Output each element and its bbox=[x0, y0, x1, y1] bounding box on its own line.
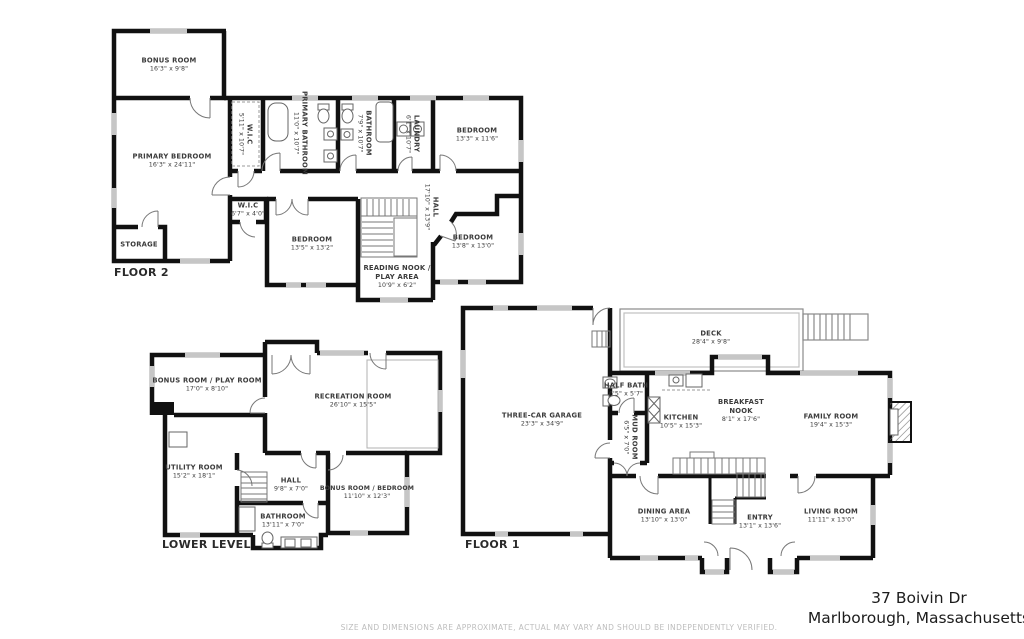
room-label-wic: W.I.C5'11" x 10'7" bbox=[237, 113, 254, 155]
utility-equipment-icon bbox=[169, 432, 187, 447]
room-label-garage: THREE-CAR GARAGE23'3" x 34'9" bbox=[502, 412, 582, 429]
sink-icon bbox=[301, 539, 311, 547]
bathtub-icon bbox=[268, 103, 288, 141]
room-label-bonus-play-room: BONUS ROOM / PLAY ROOM17'0" x 8'10" bbox=[152, 377, 261, 394]
disclaimer-text: SIZE AND DIMENSIONS ARE APPROXIMATE, ACT… bbox=[341, 623, 778, 632]
address-line2: Marlborough, Massachusetts bbox=[808, 608, 1024, 628]
room-label-bedroom-3: BEDROOM13'8" x 13'0" bbox=[452, 234, 494, 251]
room-label-laundry: LAUNDRY6'1" x 10'7" bbox=[404, 115, 421, 153]
address-line1: 37 Boivin Dr bbox=[808, 588, 1024, 608]
room-label-entry: ENTRY13'1" x 13'6" bbox=[739, 514, 781, 531]
lower-stairs-icon bbox=[241, 472, 267, 502]
room-label-primary-bathroom: PRIMARY BATHROOM11'0" x 10'7" bbox=[292, 91, 309, 175]
room-label-bedroom-2: BEDROOM13'5" x 13'2" bbox=[291, 236, 333, 253]
room-label-recreation-room: RECREATION ROOM26'10" x 15'5" bbox=[314, 393, 391, 410]
room-label-lower-bathroom: BATHROOM13'11" x 7'0" bbox=[260, 513, 305, 530]
room-label-breakfast-nook: BREAKFAST NOOK8'1" x 17'6" bbox=[710, 398, 772, 424]
fireplace-icon bbox=[889, 402, 911, 442]
room-label-living-room: LIVING ROOM11'11" x 13'0" bbox=[804, 508, 858, 525]
room-label-hall: HALL17'10" x 13'9" bbox=[423, 184, 440, 230]
floor2-title: FLOOR 2 bbox=[114, 266, 169, 279]
room-label-bonus-room: BONUS ROOM16'3" x 9'8" bbox=[142, 57, 197, 74]
deck-outline bbox=[620, 309, 868, 371]
shower-icon bbox=[239, 507, 255, 531]
room-label-wic-2: W.I.C6'7" x 4'0" bbox=[231, 202, 265, 219]
property-address: 37 Boivin Dr Marlborough, Massachusetts bbox=[808, 588, 1024, 628]
floor1-title: FLOOR 1 bbox=[465, 538, 520, 551]
room-label-primary-bedroom: PRIMARY BEDROOM16'3" x 24'11" bbox=[133, 153, 212, 170]
bathtub-icon bbox=[376, 102, 393, 142]
room-label-utility-room: UTILITY ROOM15'2" x 18'1" bbox=[165, 464, 222, 481]
floor2-stairs-icon bbox=[361, 198, 417, 257]
room-label-half-bath: HALF BATH6'5" x 5'7" bbox=[604, 382, 648, 399]
range-icon bbox=[648, 397, 660, 423]
room-label-bedroom-1: BEDROOM13'3" x 11'6" bbox=[456, 127, 498, 144]
room-label-bathroom: BATHROOM7'9" x 10'7" bbox=[356, 110, 373, 155]
floor-plan-page: BONUS ROOM16'3" x 9'8" PRIMARY BEDROOM16… bbox=[0, 0, 1024, 639]
room-label-lower-hall: HALL9'8" x 7'0" bbox=[274, 477, 308, 494]
fridge-icon bbox=[686, 374, 702, 387]
room-label-deck: DECK28'4" x 9'8" bbox=[692, 330, 730, 347]
room-label-kitchen: KITCHEN10'5" x 15'3" bbox=[660, 414, 702, 431]
room-label-reading-nook: READING NOOK / PLAY AREA10'9" x 6'2" bbox=[359, 264, 435, 290]
room-label-family-room: FAMILY ROOM19'4" x 15'3" bbox=[804, 413, 859, 430]
lower-level-title: LOWER LEVEL bbox=[162, 538, 251, 551]
room-label-dining-area: DINING AREA13'10" x 13'0" bbox=[638, 508, 691, 525]
sink-icon bbox=[285, 539, 295, 547]
chimney-icon bbox=[150, 402, 174, 415]
room-label-bonus-bedroom: BONUS ROOM / BEDROOM11'10" x 12'3" bbox=[320, 485, 414, 501]
room-label-mud-room: MUD ROOM6'5" x 7'0" bbox=[622, 414, 639, 459]
room-label-storage: STORAGE bbox=[120, 241, 157, 250]
floor1-plan bbox=[463, 308, 911, 572]
